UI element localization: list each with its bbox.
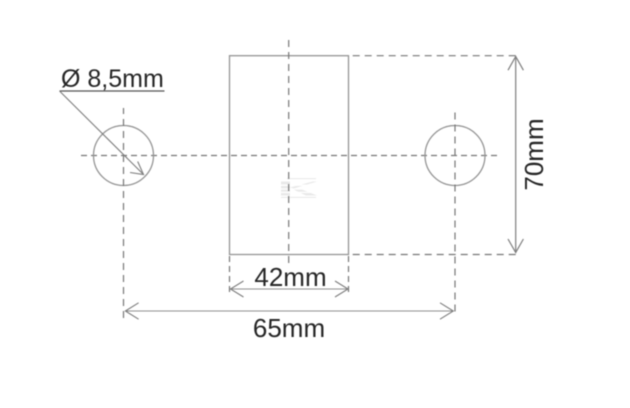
svg-text:65mm: 65mm (253, 313, 325, 343)
svg-text:70mm: 70mm (519, 118, 549, 190)
svg-text:42mm: 42mm (254, 262, 326, 292)
svg-text:Ø 8,5mm: Ø 8,5mm (61, 65, 164, 93)
